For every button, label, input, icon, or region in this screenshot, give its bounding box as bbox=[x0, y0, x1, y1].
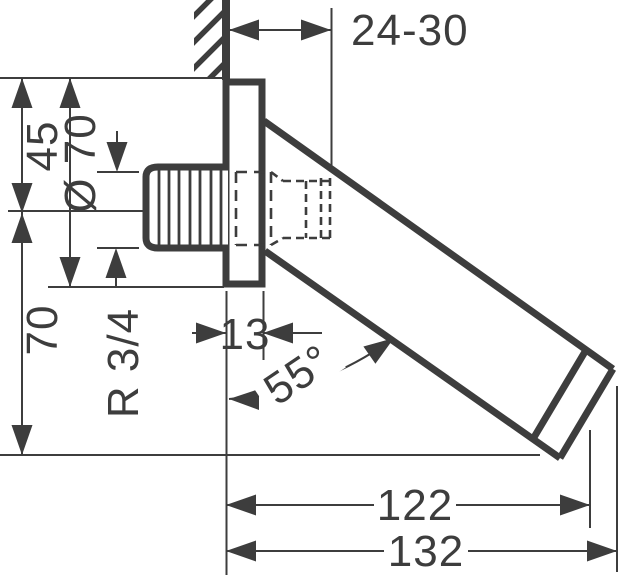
arrowhead-up bbox=[12, 78, 33, 108]
dimension-drawing-page: 24-30 45 Ø 70 70 R 3/4 bbox=[0, 0, 624, 577]
arrowhead-left bbox=[229, 389, 259, 410]
arrowhead-down bbox=[12, 183, 33, 213]
arrowhead-up bbox=[12, 213, 33, 243]
dim-label-plate-diameter: Ø 70 bbox=[56, 113, 105, 212]
arrowhead-up bbox=[106, 248, 127, 278]
dim-axis-to-outlet: 70 bbox=[12, 213, 68, 455]
dim-wall-clearance: 24-30 bbox=[229, 6, 469, 55]
dim-spray-face-reach: 122 bbox=[226, 481, 590, 530]
arrowhead-down bbox=[12, 425, 33, 455]
dim-label-overall-reach: 132 bbox=[388, 527, 464, 576]
dim-label-plate-depth: 13 bbox=[220, 310, 271, 359]
arrowhead-right bbox=[301, 20, 331, 41]
spout-body bbox=[264, 121, 613, 458]
arrowhead-left bbox=[226, 495, 256, 516]
dim-label-spray-face-reach: 122 bbox=[377, 481, 453, 530]
arrowhead-left bbox=[226, 541, 256, 562]
dim-label-wall-clearance: 24-30 bbox=[351, 6, 469, 55]
escutcheon-plate bbox=[226, 82, 262, 284]
arrowhead-down bbox=[107, 142, 128, 172]
dim-plate-diameter: Ø 70 bbox=[56, 78, 105, 287]
extension-lines bbox=[0, 8, 617, 575]
spout-top-edge bbox=[264, 121, 613, 369]
dim-label-thread-size: R 3/4 bbox=[99, 308, 148, 418]
arrowhead-edge bbox=[363, 338, 394, 364]
arrowhead-up bbox=[60, 78, 81, 108]
dim-overall-reach: 132 bbox=[226, 527, 617, 576]
arrowhead-left bbox=[229, 20, 259, 41]
arrowhead-down bbox=[60, 257, 81, 287]
arrowhead-right bbox=[560, 495, 590, 516]
dim-label-axis-to-outlet: 70 bbox=[18, 305, 67, 356]
thread-ridges bbox=[159, 170, 221, 245]
technical-drawing: 24-30 45 Ø 70 70 R 3/4 bbox=[0, 0, 624, 577]
thread-connector bbox=[146, 167, 228, 248]
arrowhead-right bbox=[587, 541, 617, 562]
